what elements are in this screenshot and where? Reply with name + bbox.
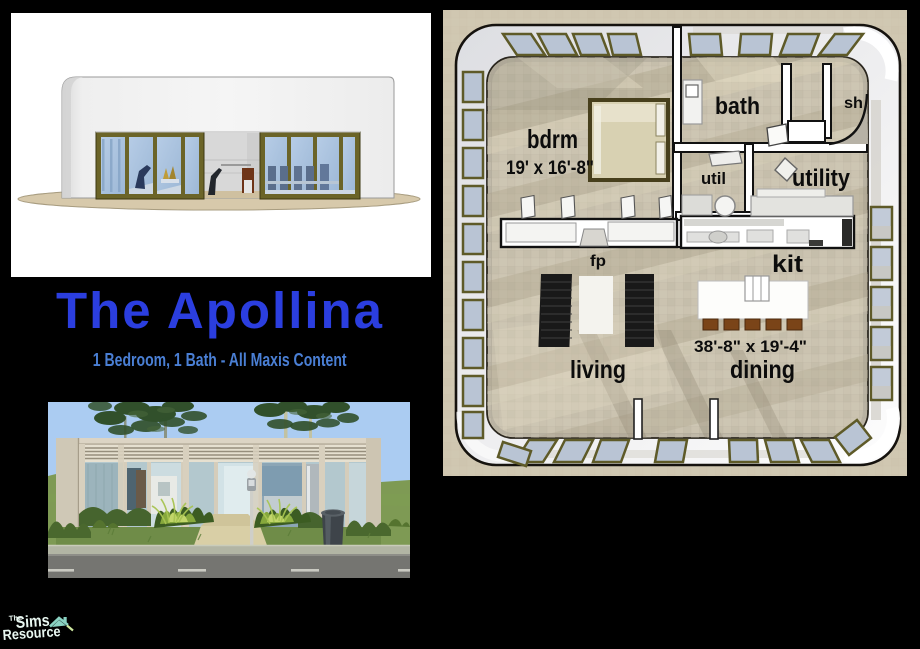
svg-text:dining: dining [730, 356, 795, 384]
svg-text:bdrm: bdrm [527, 124, 578, 154]
svg-text:38'-8" x 19'-4": 38'-8" x 19'-4" [694, 337, 807, 356]
svg-text:utility: utility [792, 165, 851, 192]
svg-text:bath: bath [715, 93, 760, 120]
svg-text:living: living [570, 356, 626, 384]
svg-text:util: util [701, 169, 726, 188]
svg-text:kit: kit [772, 251, 803, 278]
svg-text:fp: fp [590, 253, 606, 270]
svg-text:Resource: Resource [2, 624, 61, 644]
svg-text:19' x 16'-8": 19' x 16'-8" [506, 158, 594, 179]
svg-text:sh: sh [844, 95, 863, 112]
